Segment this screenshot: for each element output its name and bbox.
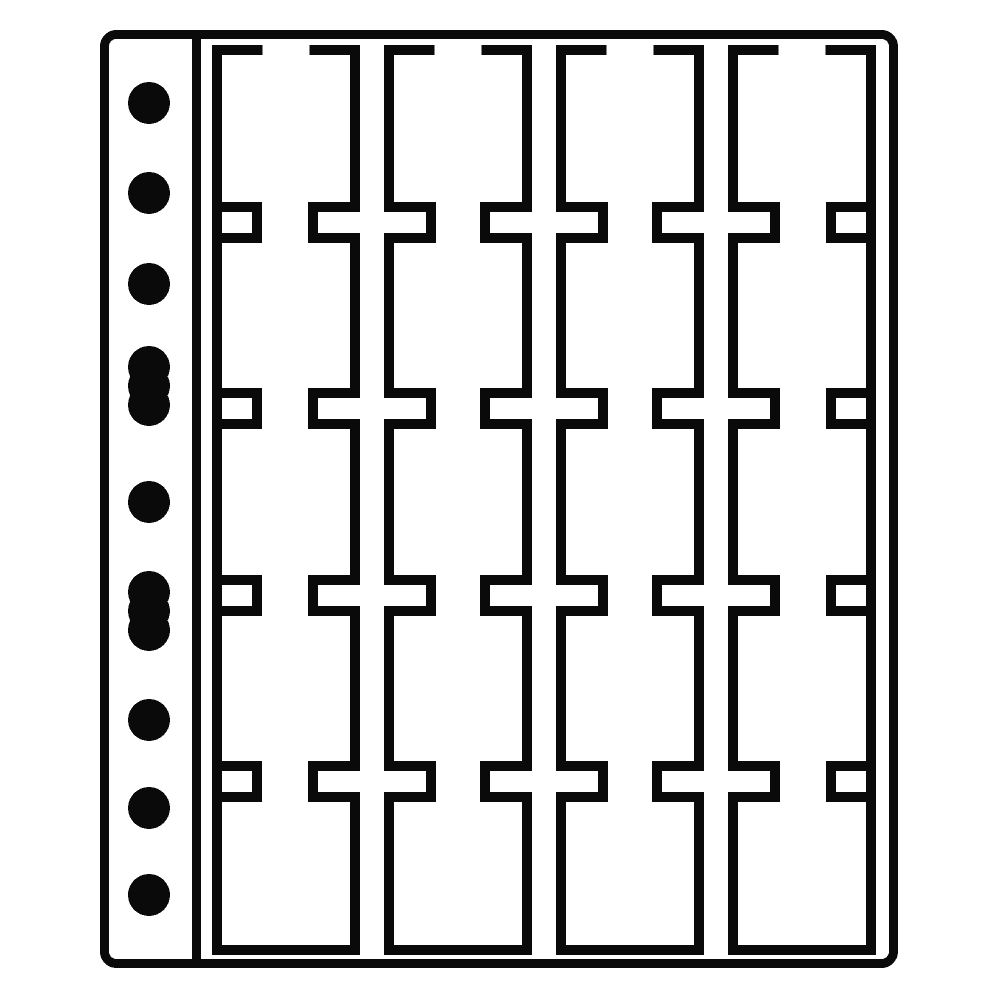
binding-hole-oblong bbox=[128, 346, 170, 426]
binding-hole-round bbox=[128, 263, 170, 305]
binding-hole-oblong bbox=[128, 571, 170, 651]
binding-hole-round bbox=[128, 699, 170, 741]
coin-sheet-drawing bbox=[0, 0, 1000, 1000]
binding-hole-round bbox=[128, 172, 170, 214]
binding-hole-round bbox=[128, 874, 170, 916]
product-image bbox=[0, 0, 1000, 1000]
binding-hole-round bbox=[128, 787, 170, 829]
binding-hole-round bbox=[128, 82, 170, 124]
binding-hole-round bbox=[128, 481, 170, 523]
